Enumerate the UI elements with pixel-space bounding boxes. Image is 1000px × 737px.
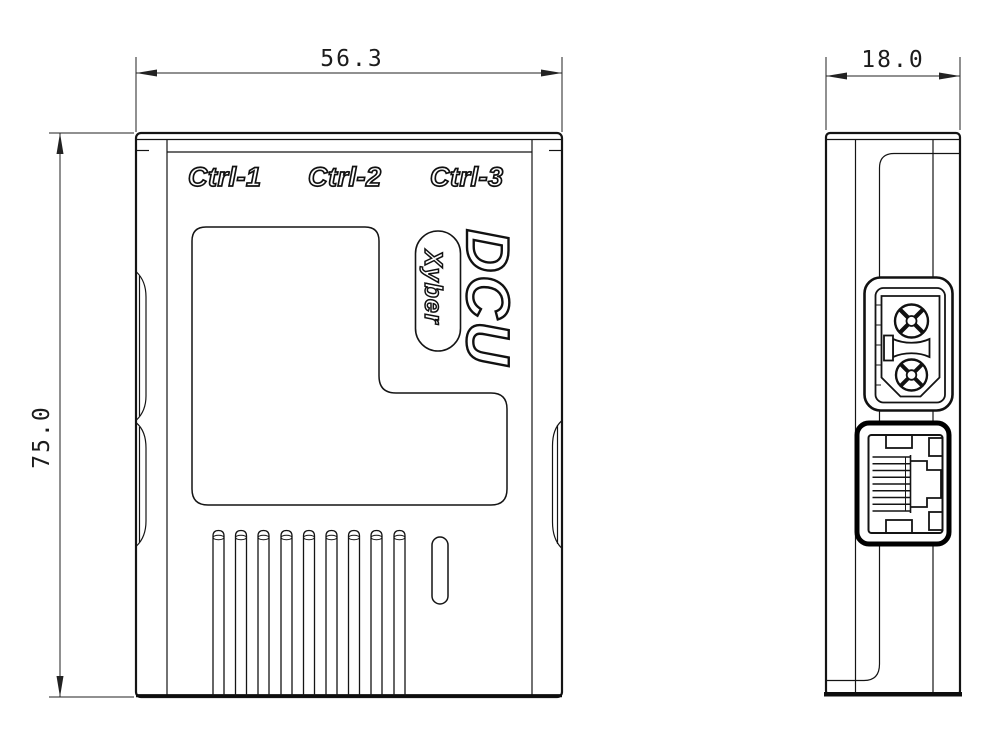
- arrowhead-right: [541, 70, 562, 77]
- xt30-pin-top: [895, 305, 928, 338]
- rj45-ethernet-port: [857, 423, 949, 544]
- brand-badge-label: Xyber: [419, 248, 447, 325]
- product-name-label: DCU: [454, 229, 521, 368]
- arrowhead-top: [57, 133, 64, 154]
- xt30-pin-bottom: [896, 360, 927, 391]
- port-label-ctrl-3: Ctrl-3: [430, 162, 504, 192]
- brand-badge: Xyber: [416, 231, 461, 351]
- xt30-power-connector: [865, 278, 953, 411]
- port-label-ctrl-2: Ctrl-2: [308, 162, 382, 192]
- dim-height-label: 75.0: [29, 405, 55, 468]
- dim-depth-label: 18.0: [861, 47, 924, 73]
- arrowhead-bottom: [57, 676, 64, 697]
- front-view: Ctrl-1 Ctrl-2 Ctrl-3 Xyber DCU: [136, 133, 562, 697]
- rj45-pin-contacts: [873, 455, 911, 513]
- height-dimension-front: 75.0: [29, 133, 134, 697]
- depth-dimension-side: 18.0: [826, 47, 960, 130]
- arrowhead-left: [136, 70, 157, 77]
- arrowhead-right: [939, 73, 960, 80]
- width-dimension-front: 56.3: [136, 46, 562, 132]
- dim-width-label: 56.3: [320, 46, 383, 72]
- xt30-key-bar: [884, 336, 893, 361]
- side-view: [824, 133, 962, 695]
- dcu-dimension-drawing: Ctrl-1 Ctrl-2 Ctrl-3 Xyber DCU: [0, 0, 1000, 737]
- port-label-ctrl-1: Ctrl-1: [188, 162, 262, 192]
- arrowhead-left: [826, 73, 847, 80]
- technical-drawing-page: Ctrl-1 Ctrl-2 Ctrl-3 Xyber DCU: [0, 0, 1000, 737]
- side-body-outline: [826, 133, 960, 695]
